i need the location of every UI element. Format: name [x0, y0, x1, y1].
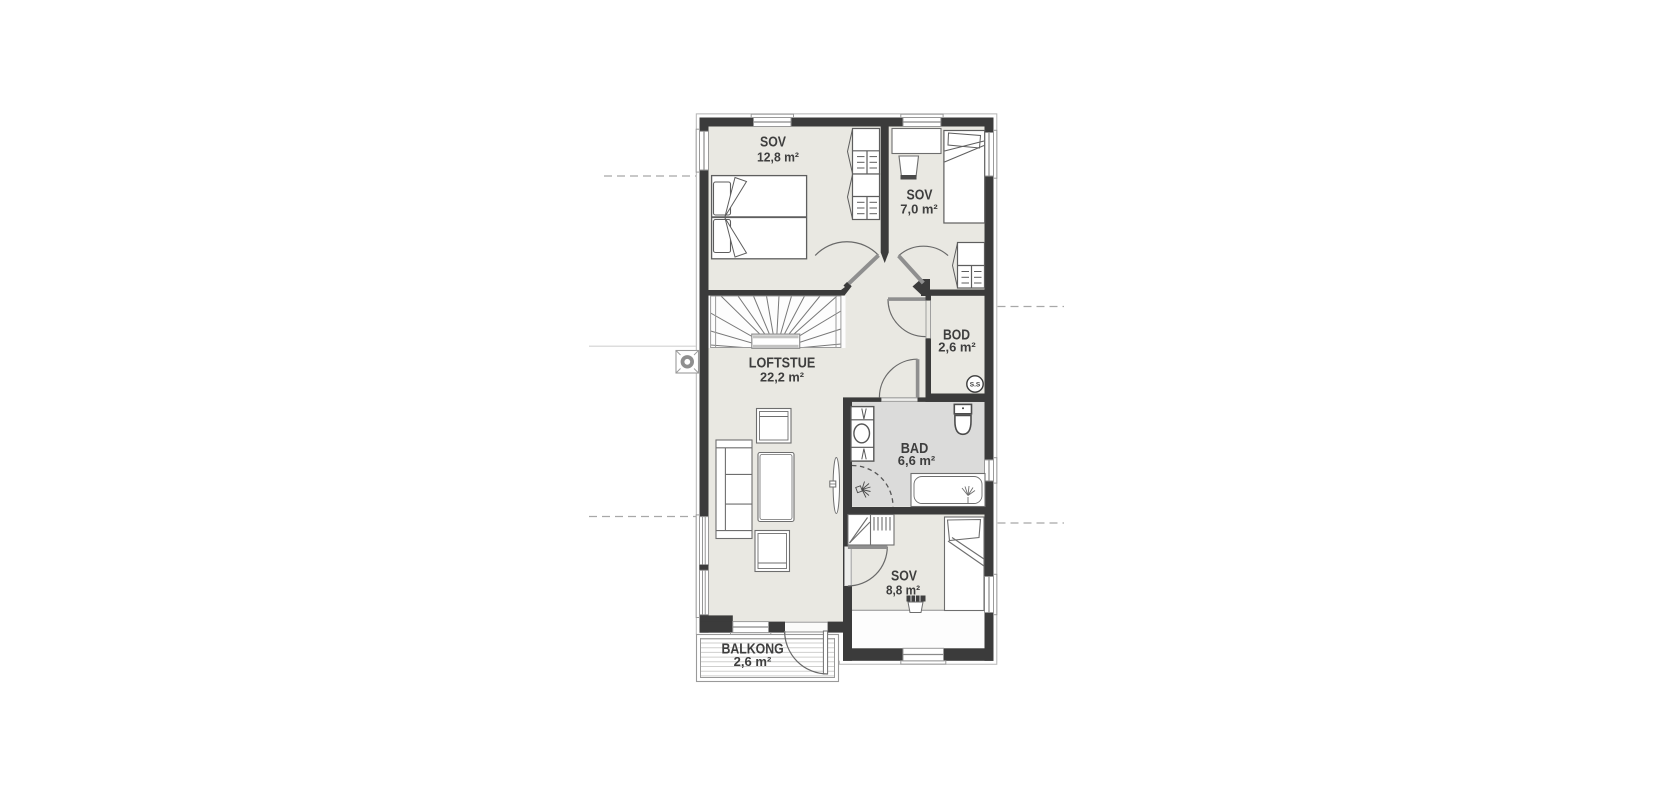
svg-text:12,8 m²: 12,8 m²: [757, 150, 800, 165]
svg-text:SOV: SOV: [760, 135, 786, 151]
svg-text:6,6 m²: 6,6 m²: [898, 453, 936, 468]
svg-text:22,2 m²: 22,2 m²: [760, 370, 805, 385]
svg-text:7,0 m²: 7,0 m²: [900, 202, 938, 217]
svg-text:2,6 m²: 2,6 m²: [938, 340, 976, 355]
svg-text:2,6 m²: 2,6 m²: [734, 654, 772, 669]
svg-text:8,8 m²: 8,8 m²: [886, 583, 921, 598]
svg-text:S.S: S.S: [970, 382, 981, 389]
